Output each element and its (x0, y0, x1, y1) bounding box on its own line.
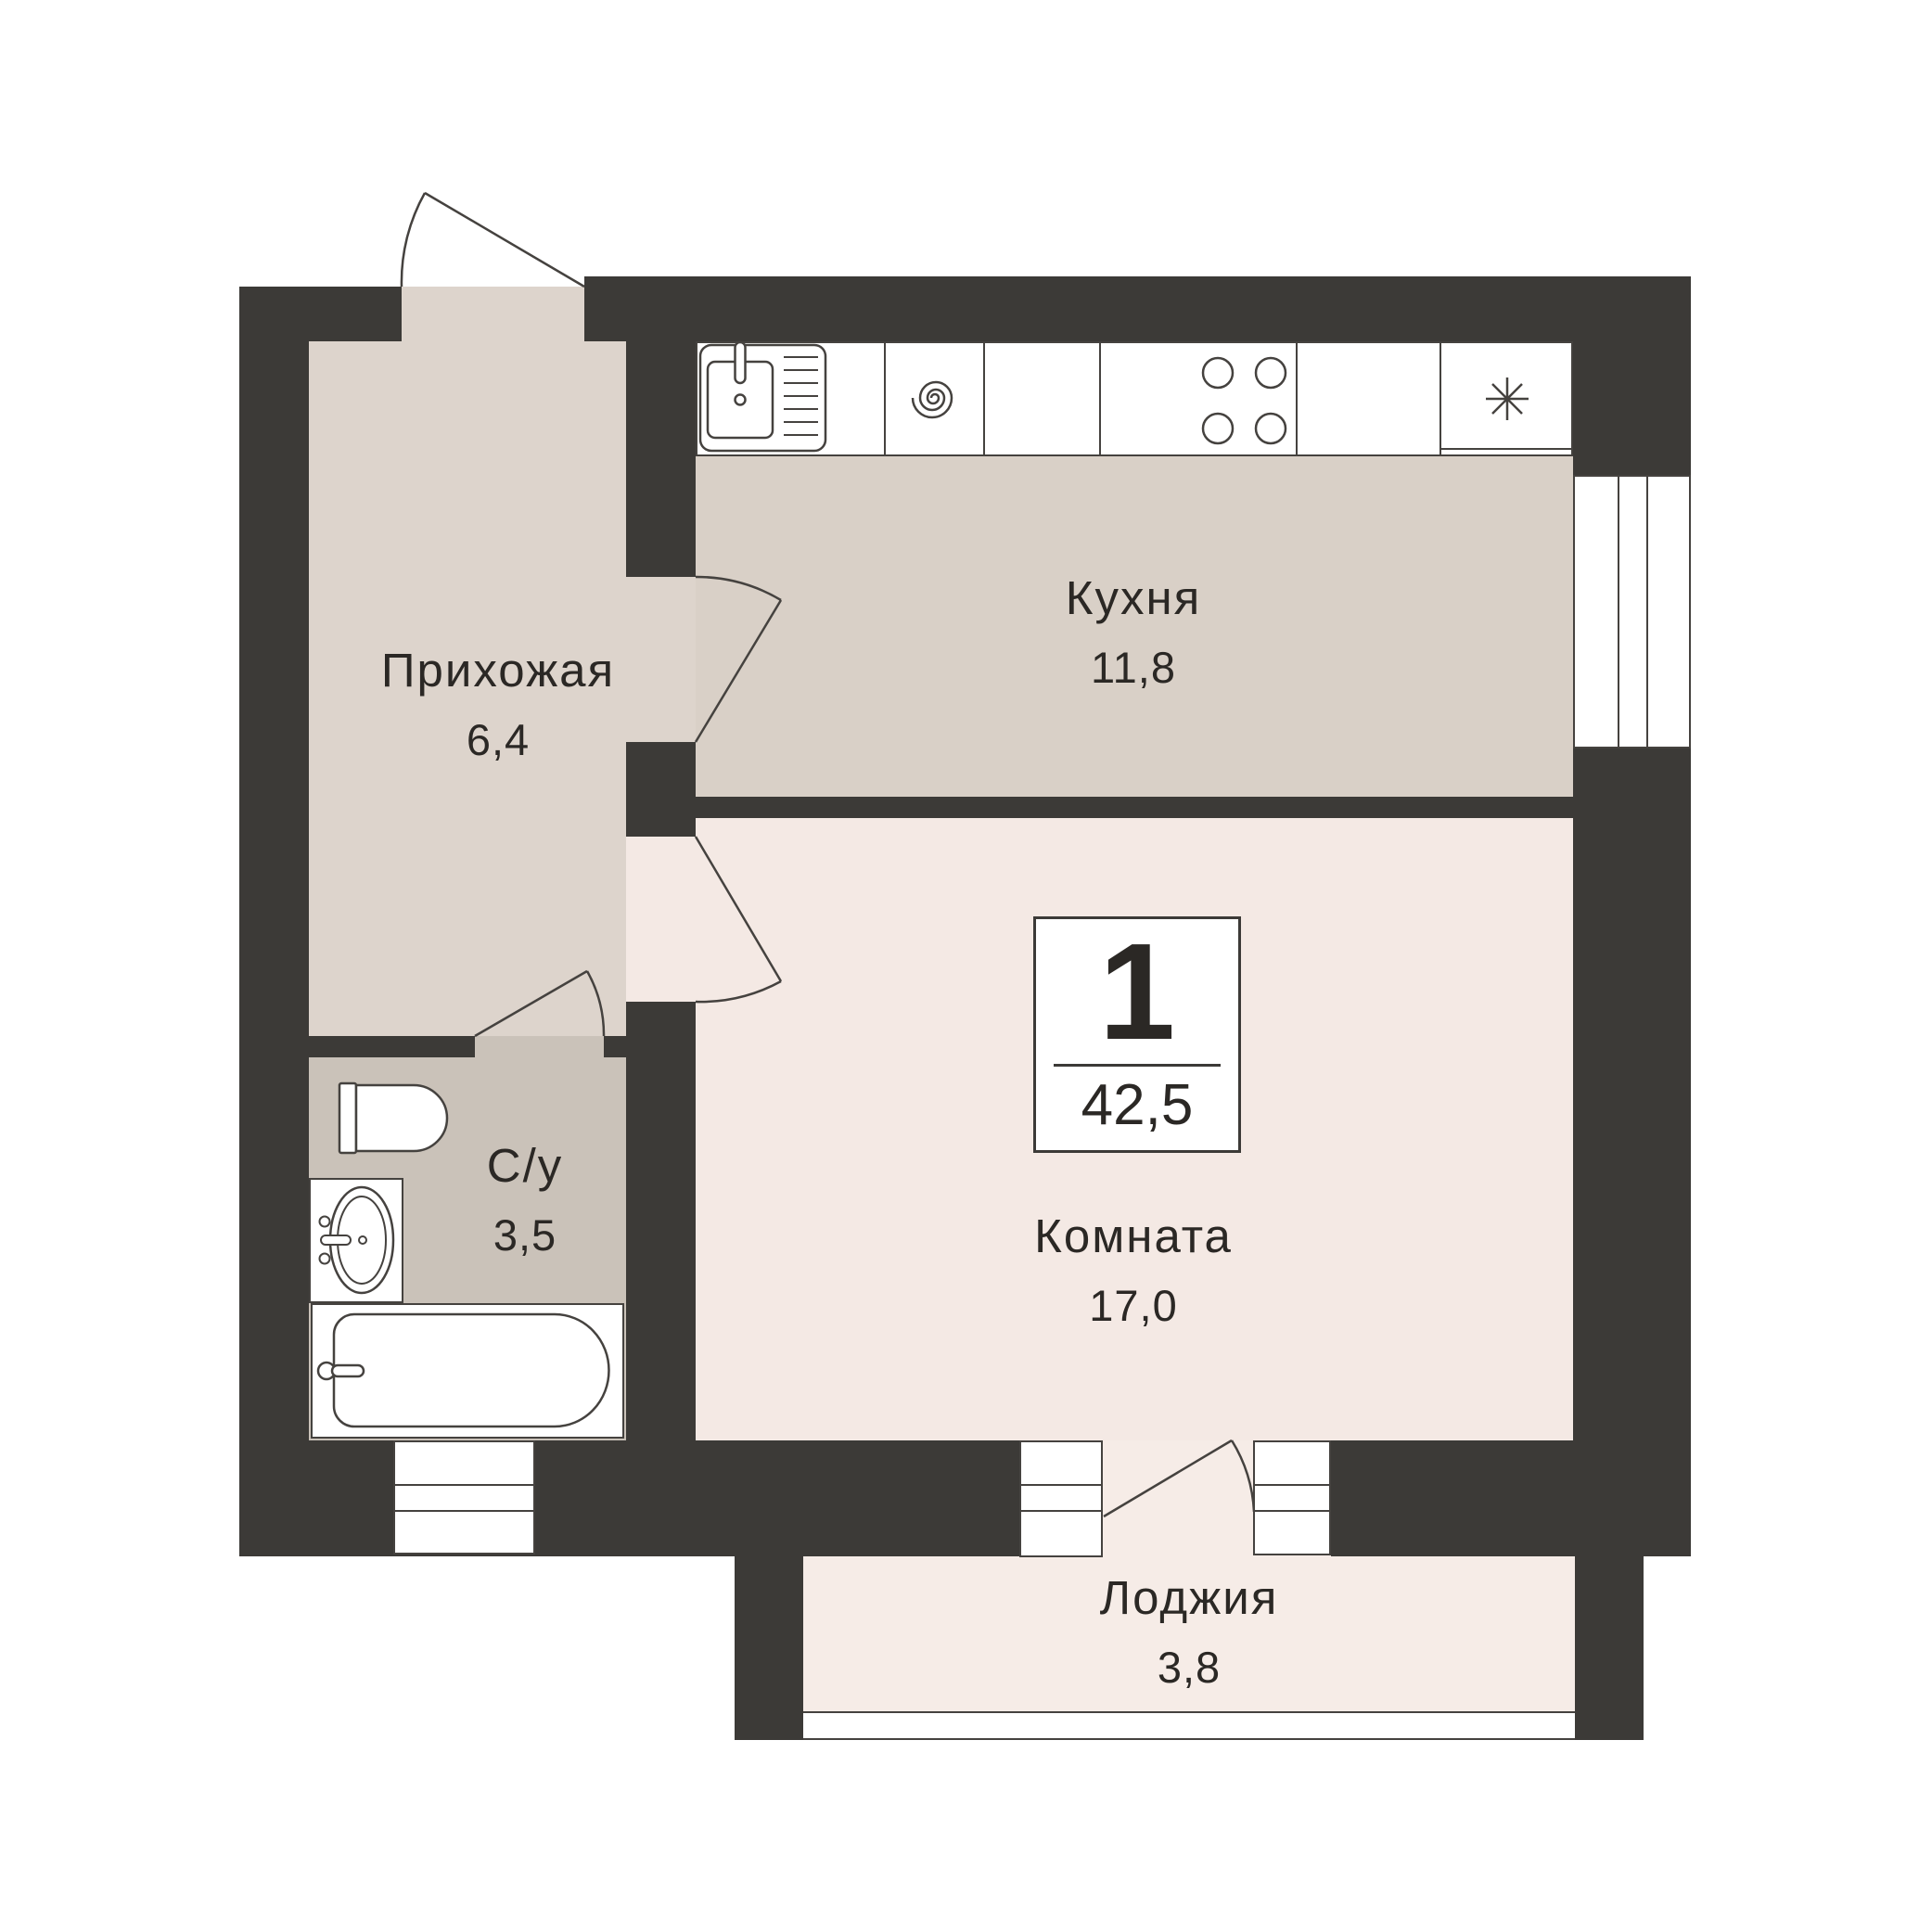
living-room-name: Комната (1034, 1201, 1233, 1271)
kitchen-area: 11,8 (1066, 633, 1202, 702)
kitchen-label: Кухня 11,8 (1066, 563, 1202, 702)
loggia-area: 3,8 (1100, 1632, 1279, 1702)
balcony-door-swing (1104, 1440, 1254, 1516)
living-room-label: Комната 17,0 (1034, 1201, 1233, 1340)
apartment-floor-plan: Прихожая 6,4 Кухня 11,8 С/у 3,5 Комната … (0, 0, 1932, 1932)
hallway-name: Прихожая (381, 635, 615, 705)
rooms-count: 1 (1036, 923, 1238, 1062)
bathroom-door-swing (475, 971, 604, 1036)
hallway-label: Прихожая 6,4 (381, 635, 615, 774)
stove-burners-icon (1203, 358, 1286, 443)
entry-door-swing (402, 193, 584, 287)
kitchen-door-swing (696, 577, 781, 742)
bathroom-name: С/у (487, 1131, 564, 1200)
kitchen-name: Кухня (1066, 563, 1202, 633)
plan-linework (0, 0, 1932, 1932)
loggia-name: Лоджия (1100, 1563, 1279, 1632)
room-door-swing (696, 837, 781, 1002)
hallway-area: 6,4 (381, 705, 615, 774)
toilet-icon (339, 1083, 447, 1153)
washbasin-icon (320, 1187, 394, 1293)
apartment-badge: 1 42,5 (1033, 916, 1241, 1153)
living-room-area: 17,0 (1034, 1271, 1233, 1340)
bathroom-label: С/у 3,5 (487, 1131, 564, 1270)
fridge-snowflake-icon (1486, 377, 1529, 420)
bathroom-area: 3,5 (487, 1200, 564, 1270)
total-area: 42,5 (1036, 1074, 1238, 1137)
loggia-label: Лоджия 3,8 (1100, 1563, 1279, 1702)
bathtub-icon (318, 1314, 608, 1427)
sink-icon (700, 342, 825, 451)
washing-machine-icon (913, 382, 952, 417)
